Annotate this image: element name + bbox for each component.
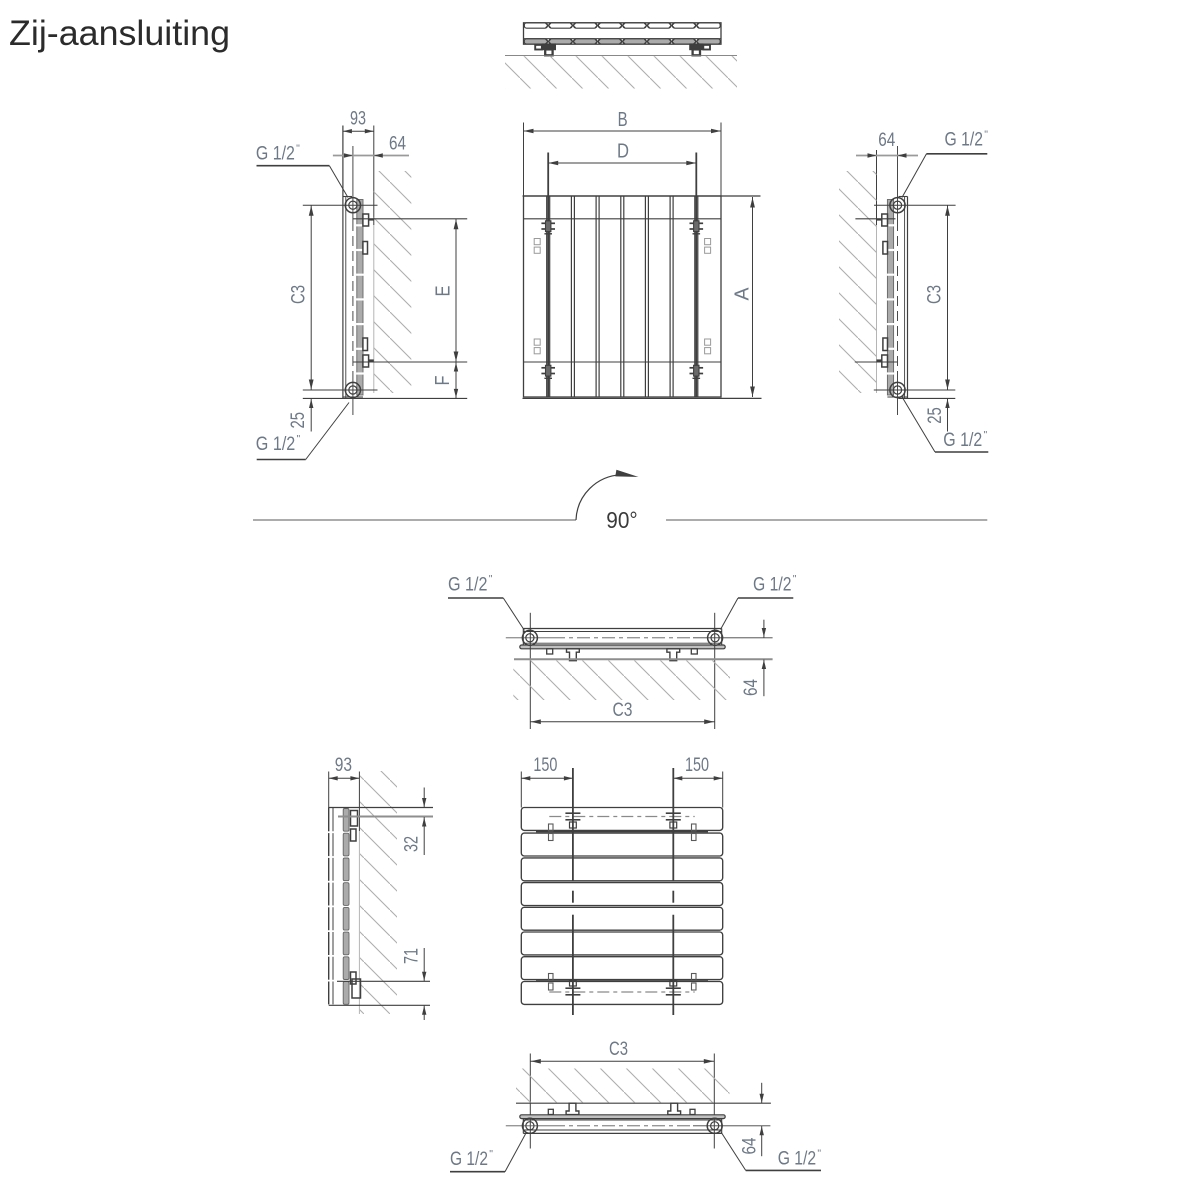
svg-text:25: 25 [925,407,946,424]
svg-text:32: 32 [402,836,423,852]
svg-text:": " [489,1148,493,1160]
svg-text:": " [793,573,797,585]
svg-text:Zij-aansluiting: Zij-aansluiting [9,14,230,53]
svg-text:A: A [732,287,754,301]
svg-text:64: 64 [878,130,895,151]
svg-text:G 1/2: G 1/2 [753,574,792,595]
svg-text:F: F [432,376,454,386]
svg-text:": " [984,429,988,441]
svg-text:C3: C3 [609,1039,628,1060]
svg-text:G 1/2: G 1/2 [945,130,984,151]
svg-text:C3: C3 [289,285,310,304]
svg-text:25: 25 [288,412,309,429]
svg-text:": " [489,573,493,585]
svg-text:93: 93 [350,108,366,129]
svg-text:": " [984,128,988,140]
svg-text:64: 64 [740,1137,761,1154]
svg-text:71: 71 [402,948,423,964]
svg-text:G 1/2: G 1/2 [448,574,488,595]
svg-text:G 1/2: G 1/2 [256,144,295,165]
svg-text:": " [297,433,301,445]
svg-text:G 1/2: G 1/2 [943,430,982,451]
svg-text:64: 64 [389,134,406,155]
svg-text:G 1/2: G 1/2 [256,434,295,455]
svg-text:D: D [617,141,629,163]
svg-text:150: 150 [685,755,709,776]
svg-text:G 1/2: G 1/2 [778,1149,817,1170]
svg-text:": " [817,1147,821,1159]
svg-text:90°: 90° [606,507,637,533]
svg-text:93: 93 [335,755,352,776]
svg-text:": " [296,142,300,154]
svg-text:B: B [618,109,628,131]
svg-text:G 1/2: G 1/2 [450,1149,488,1170]
svg-text:C3: C3 [925,285,946,304]
svg-text:150: 150 [533,755,557,776]
svg-text:C3: C3 [613,700,633,721]
svg-text:64: 64 [741,679,762,696]
svg-text:E: E [433,286,455,297]
